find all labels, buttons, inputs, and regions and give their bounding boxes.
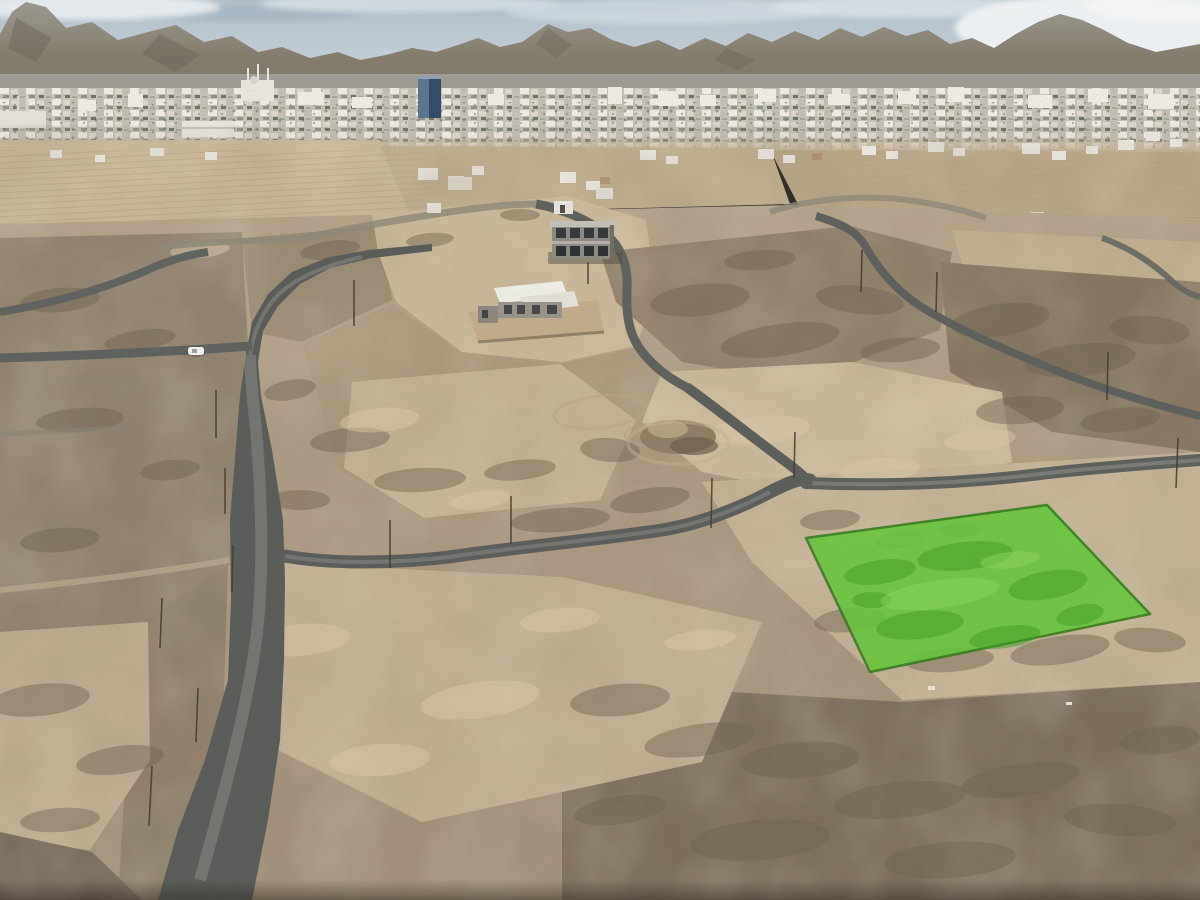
city-building <box>758 89 776 102</box>
blue-tower-roof <box>418 76 441 79</box>
city-building <box>700 95 716 106</box>
mosque-dome <box>250 76 258 84</box>
factory <box>0 111 46 128</box>
suburb-house <box>1146 132 1160 141</box>
city-building <box>828 94 850 105</box>
city-building <box>298 92 324 105</box>
photo-grain <box>0 140 1200 900</box>
warehouse-roofline <box>182 127 234 129</box>
mosque <box>241 80 274 101</box>
aerial-photo <box>0 0 1200 900</box>
blue-tower <box>429 78 441 118</box>
city-building <box>78 100 96 111</box>
city-building <box>128 94 143 107</box>
city-building <box>1148 94 1174 109</box>
city-building <box>1028 95 1052 108</box>
city-building <box>948 87 964 102</box>
city-building <box>352 97 372 108</box>
scene-layers <box>0 0 1200 900</box>
city-building <box>608 87 622 104</box>
city-building <box>488 94 504 105</box>
city-building <box>1088 89 1108 102</box>
city-building <box>898 91 916 104</box>
screenshot-aerial-photo <box>0 0 1200 900</box>
blue-tower-left-face <box>418 78 430 118</box>
bottom-shade <box>0 880 1200 900</box>
city-building <box>658 91 678 106</box>
